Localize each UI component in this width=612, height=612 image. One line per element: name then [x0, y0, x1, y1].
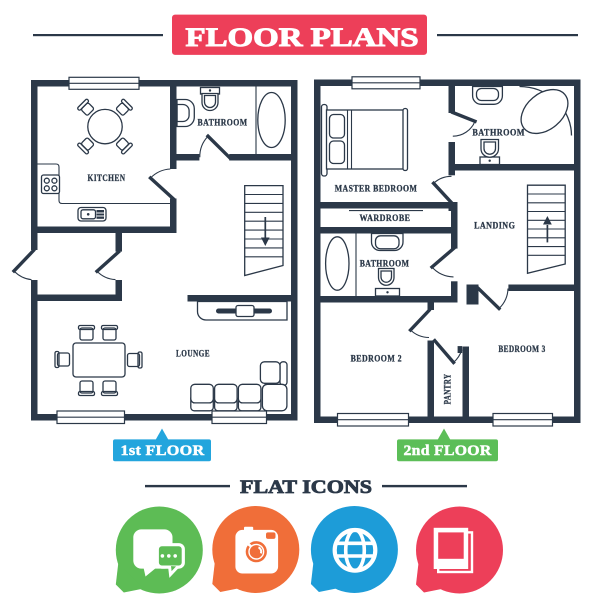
svg-text:FLOOR PLANS: FLOOR PLANS: [186, 23, 419, 52]
svg-text:BATHROOM: BATHROOM: [472, 128, 525, 138]
svg-text:FLAT ICONS: FLAT ICONS: [240, 478, 372, 498]
svg-text:LOUNGE: LOUNGE: [176, 349, 210, 359]
svg-text:BATHROOM: BATHROOM: [198, 118, 248, 128]
svg-text:MASTER BEDROOM: MASTER BEDROOM: [335, 184, 418, 194]
svg-text:2nd FLOOR: 2nd FLOOR: [404, 443, 492, 459]
svg-text:WARDROBE: WARDROBE: [360, 213, 411, 223]
svg-text:KITCHEN: KITCHEN: [88, 173, 126, 183]
svg-text:BATHROOM: BATHROOM: [360, 259, 410, 269]
svg-text:PANTRY: PANTRY: [443, 374, 453, 405]
svg-text:BEDROOM 3: BEDROOM 3: [498, 344, 545, 354]
svg-text:LANDING: LANDING: [474, 221, 515, 231]
svg-text:1st FLOOR: 1st FLOOR: [121, 443, 205, 459]
svg-text:BEDROOM 2: BEDROOM 2: [351, 354, 402, 364]
